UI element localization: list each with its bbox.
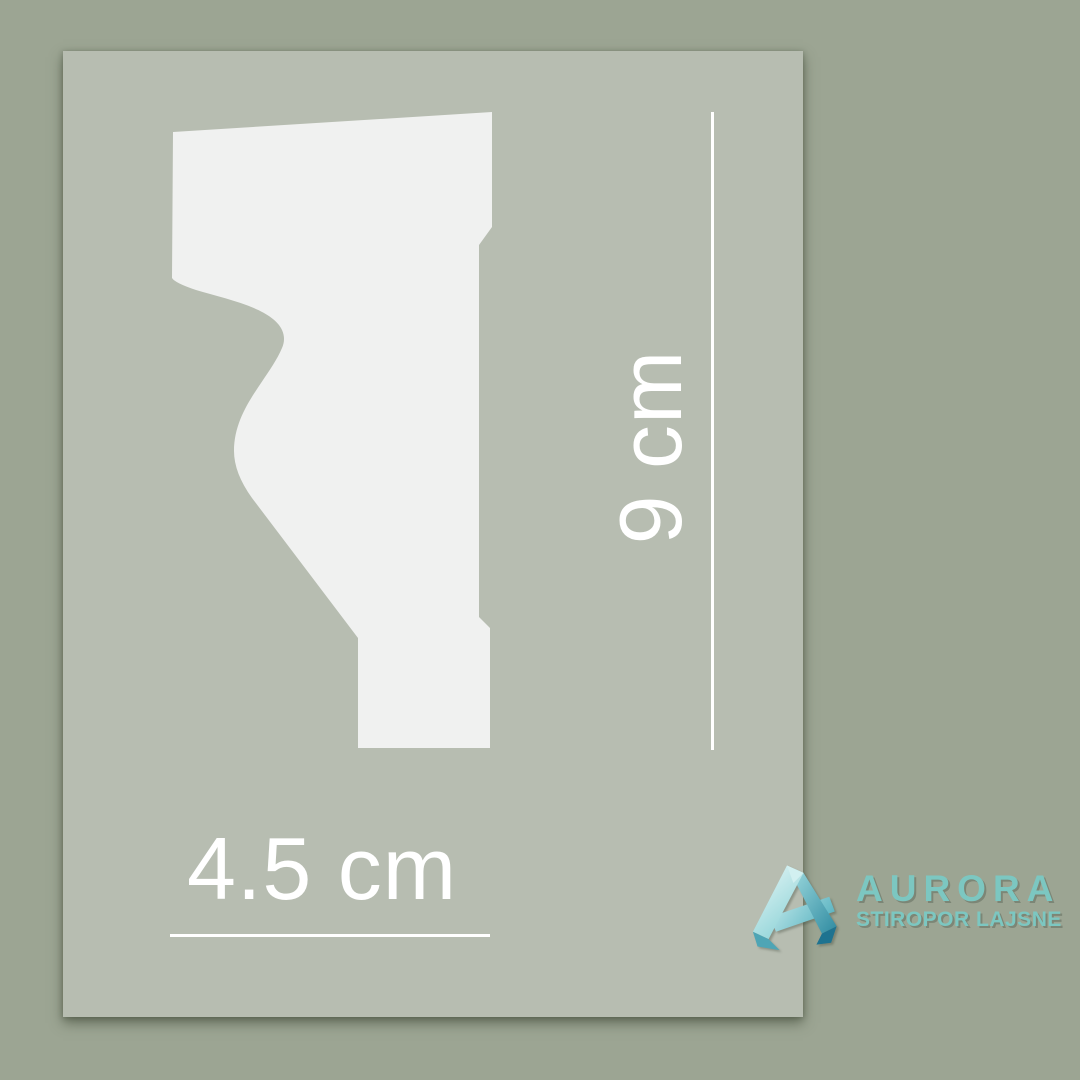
brand-tagline: STIROPOR LAJSNE [856,909,1062,930]
brand-logo: AURORA STIROPOR LAJSNE [750,858,1060,958]
height-dimension-label: 9 cm [607,350,695,545]
brand-name: AURORA [856,870,1060,907]
profile-panel: 9 cm 4.5 cm [63,51,803,1017]
product-image-canvas: 9 cm 4.5 cm [0,0,1080,1080]
width-dimension-line [170,934,490,937]
width-dimension-label: 4.5 cm [187,825,457,913]
height-dimension-line [711,112,714,750]
folded-ribbon-letter-a-icon [750,860,846,952]
